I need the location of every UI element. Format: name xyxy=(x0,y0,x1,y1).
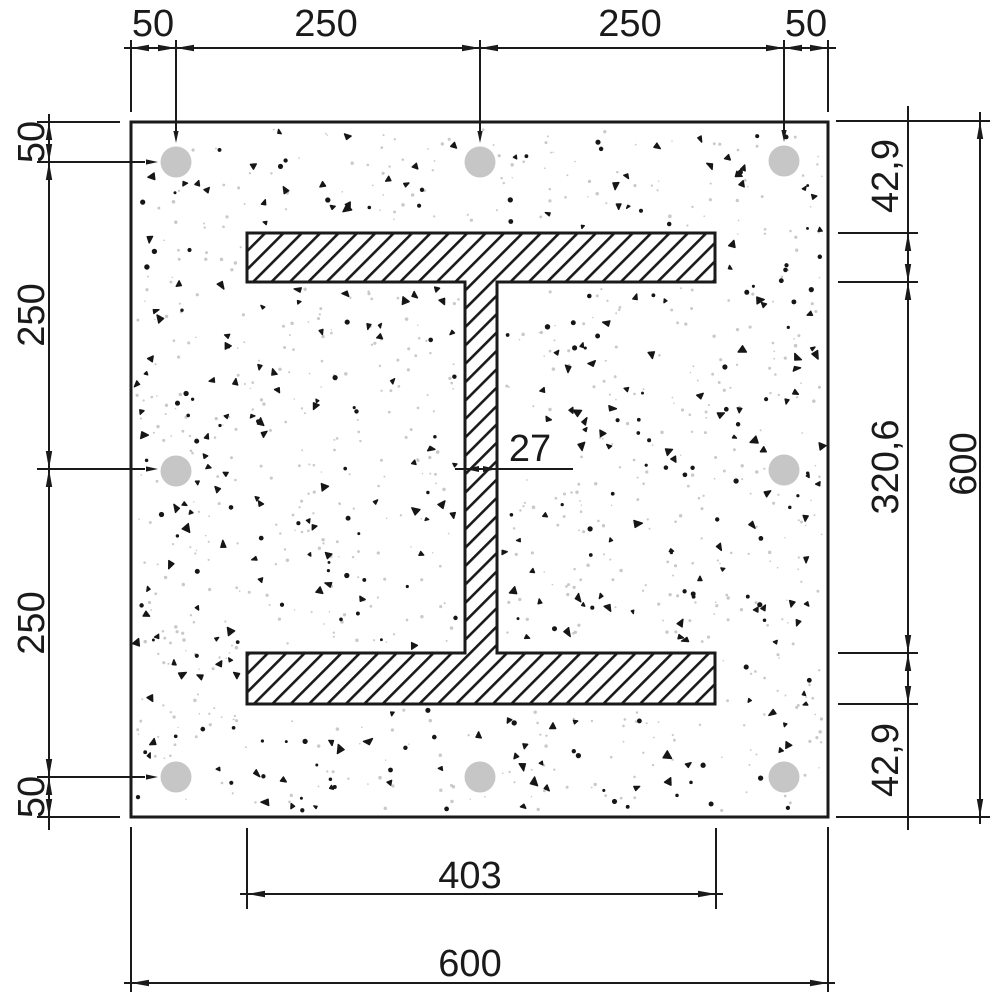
cross-section-drawing: 50 250 250 50 50 250 250 50 42,9 320,6 4… xyxy=(0,0,993,994)
rebar-circle xyxy=(161,456,192,487)
dim-label-flange-width: 403 xyxy=(438,855,501,897)
rebar-circle xyxy=(769,146,800,177)
dim-label-top-cover-left: 50 xyxy=(132,3,174,45)
dim-label-flange-thickness-bottom: 42,9 xyxy=(865,723,907,797)
rebar-circle xyxy=(769,455,800,486)
engineering-drawing-canvas: 50 250 250 50 50 250 250 50 42,9 320,6 4… xyxy=(0,0,993,994)
dim-label-right-total-height: 600 xyxy=(943,432,985,495)
rebar-circle xyxy=(161,762,192,793)
dim-label-web-height: 320,6 xyxy=(865,419,907,514)
rebar-circle xyxy=(465,147,496,178)
dim-label-flange-thickness-top: 42,9 xyxy=(865,139,907,213)
rebar-circle xyxy=(465,762,496,793)
dim-label-left-span-top: 250 xyxy=(11,283,53,346)
dim-label-left-span-bottom: 250 xyxy=(11,591,53,654)
rebar-circle xyxy=(769,762,800,793)
dim-label-top-span-left: 250 xyxy=(294,3,357,45)
rebar-circle xyxy=(161,147,192,178)
dim-label-left-cover-top: 50 xyxy=(11,121,53,163)
dim-label-bottom-total-width: 600 xyxy=(438,943,501,985)
dim-label-top-cover-right: 50 xyxy=(785,3,827,45)
dim-label-top-span-right: 250 xyxy=(598,3,661,45)
dim-label-left-cover-bottom: 50 xyxy=(11,776,53,818)
dim-label-web-thickness: 27 xyxy=(509,428,551,470)
